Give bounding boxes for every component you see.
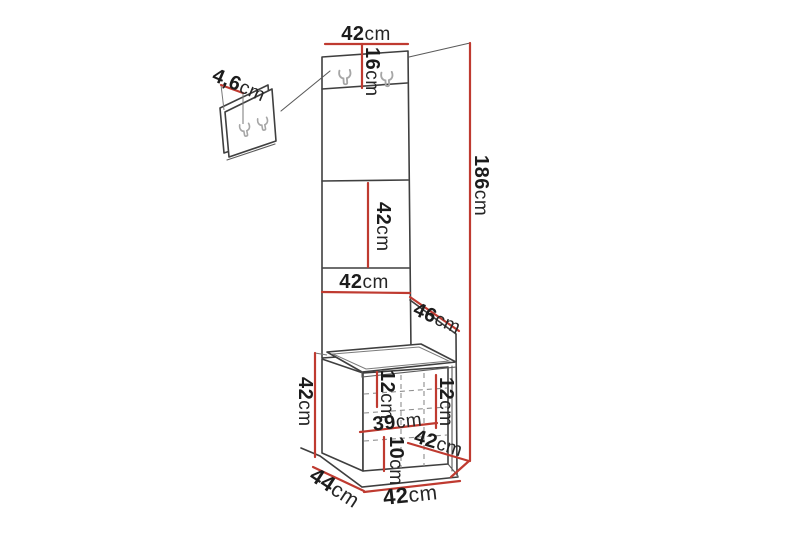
dim-label-middle-panel-height: 42cm — [372, 202, 394, 252]
panel-section-line — [322, 180, 408, 181]
tall-panel-front — [322, 51, 411, 358]
dim-label-bench-inner-right: 12cm — [435, 377, 457, 427]
dim-label-top-width: 42cm — [341, 23, 391, 45]
dim-label-panel-width: 42cm — [339, 271, 389, 293]
dim-line-height-bottom-witness — [451, 461, 469, 477]
dim-label-bench-width: 42cm — [382, 479, 439, 510]
furniture-dimension-diagram: 42cm 16cm 4,6cm 42cm 42cm 46cm 186cm 42c… — [0, 0, 800, 533]
bench-left-face — [322, 359, 363, 471]
dim-label-bench-base-height: 10cm — [385, 436, 407, 486]
dim-label-bench-depth: 44cm — [305, 462, 364, 513]
dim-label-total-height: 186cm — [470, 155, 492, 216]
dim-label-hook-section-height: 16cm — [361, 47, 383, 97]
height-witness-line — [409, 43, 470, 57]
dim-label-bench-height: 42cm — [294, 377, 316, 427]
dim-label-side-panel-depth: 46cm — [410, 298, 464, 338]
